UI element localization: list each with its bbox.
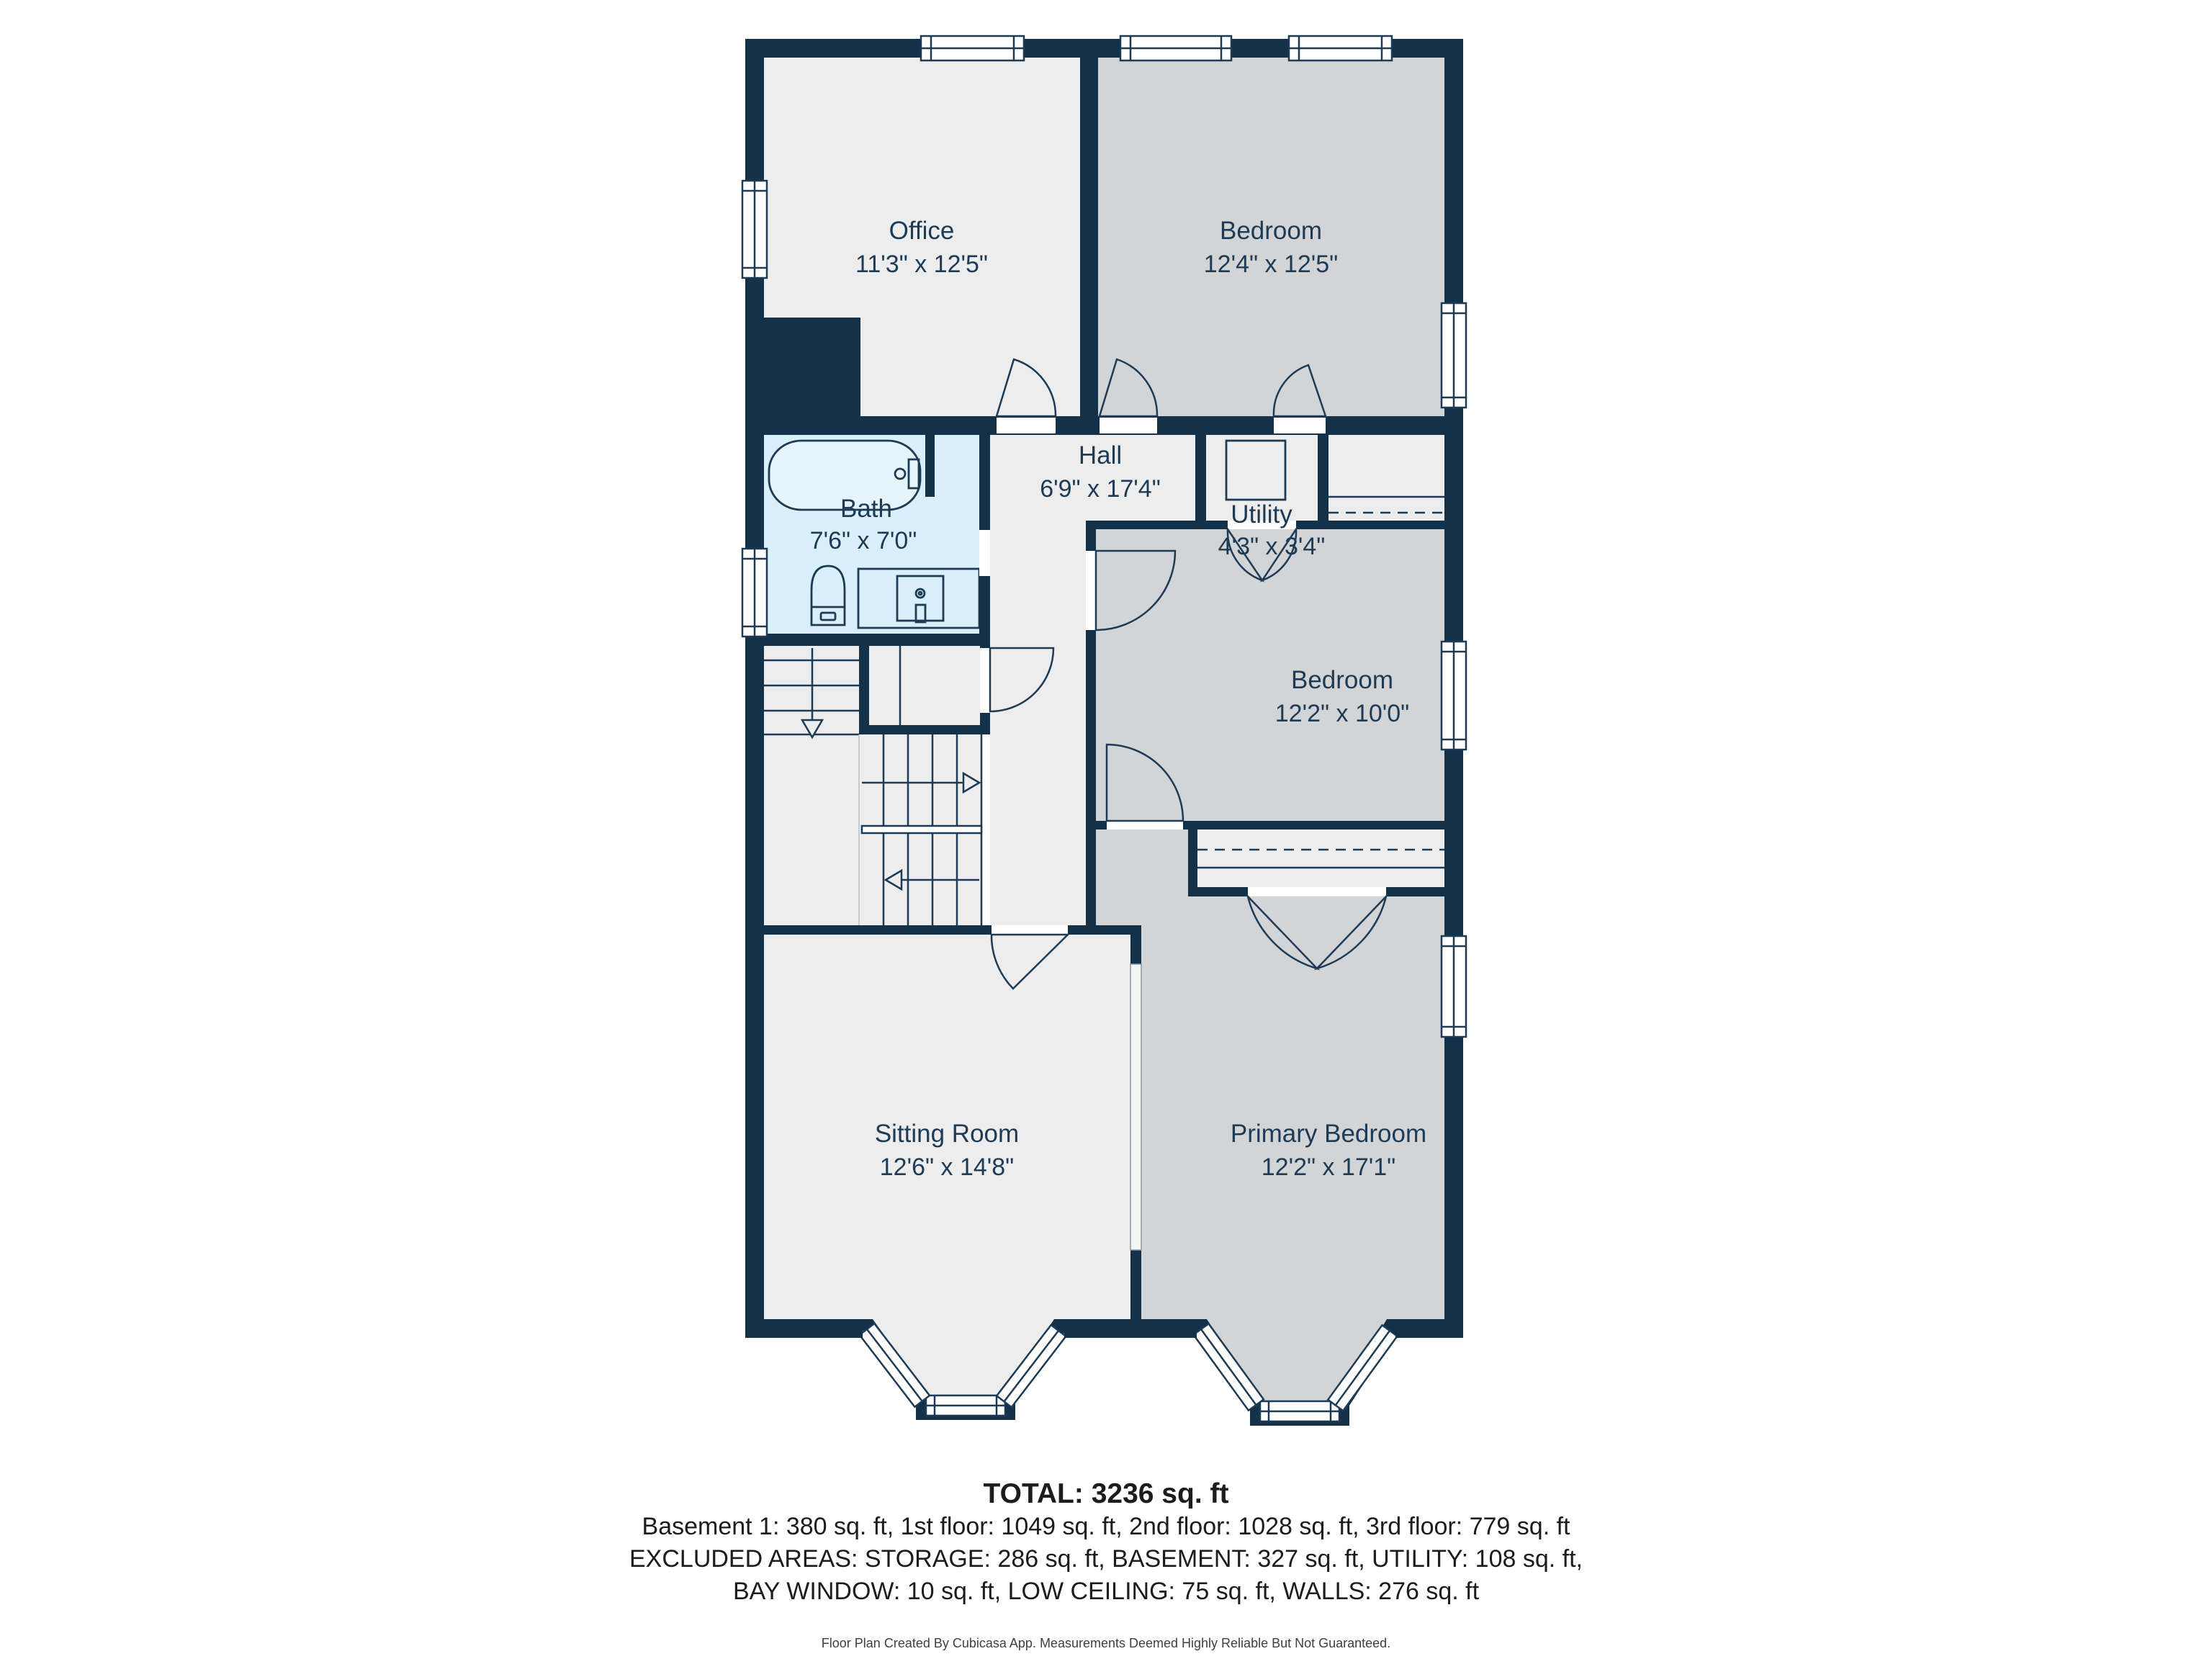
bedroom-top-right-window — [1442, 303, 1466, 408]
bedroom-top-dims: 12'4" x 12'5" — [1204, 251, 1338, 278]
wall-stairs-closet-bottom — [859, 725, 990, 734]
stairs-closet-door-leaf — [980, 648, 990, 713]
wall-bath-bottom — [764, 634, 990, 646]
bedroom-mid-right-window — [1442, 642, 1466, 750]
bath-left-window — [742, 549, 767, 637]
bedroom-utility-door-sill — [1274, 418, 1326, 433]
wall-utility-closet — [1318, 435, 1328, 521]
closet-top-floor — [1328, 435, 1444, 521]
primary-bay-front-window — [1260, 1401, 1339, 1421]
closet-primary-floor — [1197, 829, 1444, 887]
office-left-window — [742, 181, 767, 278]
bath-dims: 7'6" x 7'0" — [810, 527, 917, 554]
wall-office-bedroom — [1080, 58, 1098, 416]
bedroom-top-window-b — [1289, 36, 1392, 60]
bedroom-top-window-a — [1120, 36, 1231, 60]
primary-bay — [1188, 1319, 1406, 1426]
hall-dims: 6'9" x 17'4" — [1040, 475, 1161, 503]
disclaimer-text: Floor Plan Created By Cubicasa App. Meas… — [0, 1636, 2212, 1651]
wall-office-notch — [764, 318, 860, 416]
sitting-bay-front-window — [926, 1395, 1005, 1416]
stairs-closet-floor — [869, 646, 980, 725]
sitting-dims: 12'6" x 14'8" — [880, 1154, 1014, 1181]
office-label: Office — [889, 217, 955, 245]
bedroom-mid-label: Bedroom — [1291, 666, 1393, 694]
wall-bottom-right-seg — [1395, 1319, 1444, 1338]
utility-label: Utility — [1231, 500, 1292, 529]
bath-label: Bath — [840, 495, 892, 523]
sitting-primary-opening — [1130, 964, 1141, 1250]
floor-plan-page: Office 11'3" x 12'5" Bedroom 12'4" x 12'… — [0, 0, 2212, 1659]
closet-primary-door-sill — [1248, 887, 1386, 896]
sitting-label: Sitting Room — [875, 1120, 1019, 1148]
primary-dims: 12'2" x 17'1" — [1262, 1154, 1395, 1181]
bedroom-mid-dims: 12'2" x 10'0" — [1275, 700, 1409, 727]
primary-floor — [1096, 829, 1444, 1319]
wall-tub-closet — [925, 435, 935, 497]
wall-divider-stub-bottom — [1130, 1250, 1141, 1319]
wall-bottom-mid-seg — [1064, 1319, 1197, 1338]
bedroom-mid-door-leaf — [1086, 551, 1096, 630]
floor-areas-text: Basement 1: 380 sq. ft, 1st floor: 1049 … — [0, 1511, 2212, 1543]
bath-door-opening — [979, 530, 990, 576]
wall-sitting-top — [764, 925, 1136, 935]
primary-label: Primary Bedroom — [1231, 1120, 1426, 1148]
bedroom-top-label: Bedroom — [1220, 217, 1322, 245]
excluded-areas-text-2: BAY WINDOW: 10 sq. ft, LOW CEILING: 75 s… — [0, 1575, 2212, 1608]
area-summary: TOTAL: 3236 sq. ft Basement 1: 380 sq. f… — [0, 1478, 2212, 1608]
utility-dims: 4'3" x 3'4" — [1218, 533, 1326, 560]
excluded-areas-text: EXCLUDED AREAS: STORAGE: 286 sq. ft, BAS… — [0, 1543, 2212, 1575]
total-area-text: TOTAL: 3236 sq. ft — [0, 1478, 2212, 1511]
office-door-sill — [997, 418, 1056, 433]
bedroom-lower-door-sill — [1107, 821, 1183, 829]
bedroom-top-door-sill — [1100, 418, 1157, 433]
primary-right-window — [1442, 936, 1466, 1037]
office-dims: 11'3" x 12'5" — [855, 251, 988, 278]
wall-hall-utility — [1195, 435, 1206, 521]
floor-plan-drawing: Office 11'3" x 12'5" Bedroom 12'4" x 12'… — [0, 0, 2212, 1659]
hall-label: Hall — [1079, 441, 1122, 469]
sitting-bay — [854, 1319, 1074, 1420]
wall-closet-primary-left — [1188, 829, 1197, 896]
wall-bottom-left-seg — [764, 1319, 863, 1338]
office-top-window — [921, 36, 1024, 60]
sitting-door-sill — [992, 925, 1068, 935]
wall-divider-stub-top — [1130, 925, 1141, 964]
stair-rail — [862, 826, 981, 833]
wall-stairs-closet-left — [859, 646, 869, 734]
